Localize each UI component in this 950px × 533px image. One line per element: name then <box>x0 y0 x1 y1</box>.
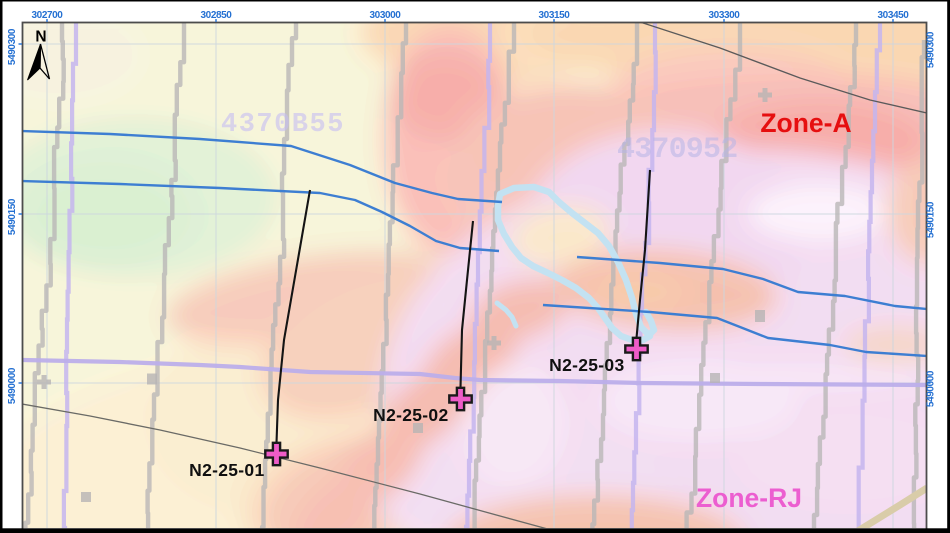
svg-text:5490300: 5490300 <box>7 28 18 65</box>
svg-text:5490300: 5490300 <box>926 31 937 68</box>
svg-text:5490150: 5490150 <box>7 198 18 235</box>
svg-text:N2-25-02: N2-25-02 <box>373 405 448 425</box>
svg-text:5490150: 5490150 <box>926 201 937 238</box>
svg-text:4370B55: 4370B55 <box>221 110 345 140</box>
svg-text:5490000: 5490000 <box>7 367 18 404</box>
svg-text:N: N <box>35 29 46 46</box>
svg-text:4370952: 4370952 <box>617 133 737 167</box>
svg-text:Zone-A: Zone-A <box>760 108 851 138</box>
svg-text:5490000: 5490000 <box>926 370 937 407</box>
svg-text:N2-25-01: N2-25-01 <box>189 460 264 480</box>
svg-text:N2-25-03: N2-25-03 <box>549 355 624 375</box>
svg-text:Zone-RJ: Zone-RJ <box>696 483 802 513</box>
